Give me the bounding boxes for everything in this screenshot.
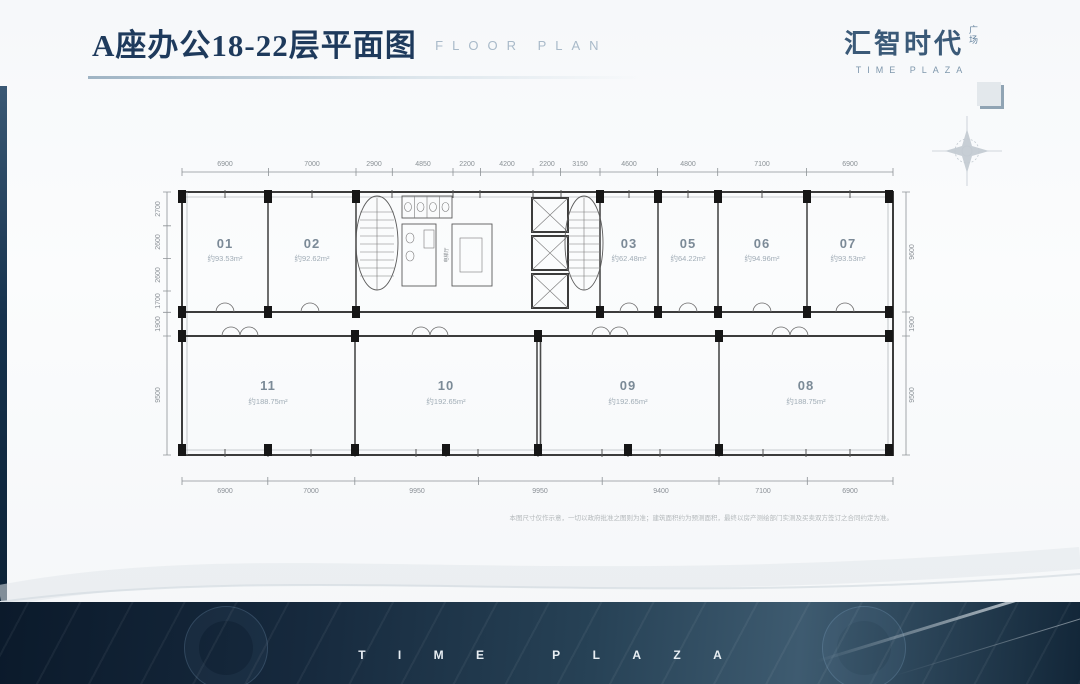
page-title: A座办公18-22层平面图 — [92, 28, 417, 63]
room-number: 06 — [754, 236, 770, 251]
dimension-line-left — [163, 192, 171, 455]
dim-label: 1900 — [909, 316, 916, 332]
swoosh-curve — [0, 558, 1080, 596]
room-number: 01 — [217, 236, 233, 251]
room-area: 约192.65m² — [608, 396, 648, 406]
room-label-03: 03 约62.48m² — [611, 236, 647, 263]
room-label-01: 01 约93.53m² — [207, 236, 243, 263]
footer-band: TIME PLAZA — [0, 602, 1080, 684]
room-number: 02 — [304, 236, 320, 251]
footer-watermark: TIME PLAZA — [0, 648, 1080, 662]
room-number: 08 — [798, 378, 814, 393]
room-label-09: 09 约192.65m² — [608, 378, 648, 406]
dimension-line-bottom — [182, 477, 893, 485]
brand-logo: 汇智时代 广场 TIME PLAZA — [844, 22, 980, 75]
dim-label: 4850 — [415, 161, 431, 168]
toilet-stall-dividers — [415, 196, 440, 218]
band-highlight-line — [894, 617, 1080, 676]
dim-label: 6900 — [217, 161, 233, 168]
dim-label: 6900 — [842, 488, 858, 495]
room-number: 11 — [260, 378, 276, 393]
dim-label: 9400 — [653, 488, 669, 495]
room-label-07: 07 约93.53m² — [830, 236, 866, 263]
dim-label: 7000 — [303, 488, 319, 495]
room-number: 09 — [620, 378, 636, 393]
room-area: 约93.53m² — [830, 253, 866, 263]
structural-columns — [178, 190, 893, 456]
title-underline — [88, 76, 640, 79]
upper-room-partitions — [268, 192, 807, 312]
dim-label: 9950 — [532, 488, 548, 495]
disclaimer-text: 本图尺寸仅作示意，一切以政府批准之图则为准；建筑面积约为预测面积，最终以房产测绘… — [510, 513, 894, 522]
floor-plan-page: A座办公18-22层平面图 FLOOR PLAN 汇智时代 广场 TIME PL… — [0, 0, 1080, 684]
toilet-icon — [417, 203, 424, 212]
dim-label: 2200 — [459, 161, 475, 168]
floor-plan-svg: 电梯厅 6900 7000 2900 4850 2200 4200 2200 3… — [130, 95, 1020, 540]
stairwell-left-treads — [360, 198, 394, 290]
dim-label: 2200 — [539, 161, 555, 168]
room-number: 03 — [621, 236, 637, 251]
brand-name-cn: 汇智时代 — [844, 22, 964, 61]
brand-name-en: TIME PLAZA — [844, 65, 980, 75]
compass-icon — [932, 116, 1002, 186]
room-number: 05 — [680, 236, 696, 251]
dim-label: 2700 — [155, 201, 162, 217]
dimension-line-top — [182, 168, 893, 176]
room-area: 约188.75m² — [786, 396, 826, 406]
room-area: 约93.53m² — [207, 253, 243, 263]
room-label-11: 11 约188.75m² — [248, 378, 288, 406]
dim-label: 9500 — [155, 387, 162, 403]
core-label: 电梯厅 — [443, 247, 450, 262]
washroom — [402, 224, 436, 286]
dim-label: 1700 — [155, 293, 162, 309]
toilet-icon — [430, 203, 437, 212]
dim-label: 2600 — [155, 234, 162, 250]
dim-label: 9600 — [909, 244, 916, 260]
room-area: 约188.75m² — [248, 396, 288, 406]
page-subtitle: FLOOR PLAN — [435, 38, 607, 53]
dim-label: 2900 — [366, 161, 382, 168]
sink-icon — [406, 251, 414, 261]
header: A座办公18-22层平面图 FLOOR PLAN — [92, 20, 608, 65]
core-room-fixture — [460, 238, 482, 272]
room-area: 约64.22m² — [670, 253, 706, 263]
toilet-icon — [442, 203, 449, 212]
brand-name-suffix: 广场 — [967, 25, 980, 45]
dim-label: 6900 — [217, 488, 233, 495]
dim-label: 2600 — [155, 267, 162, 283]
elevator-shafts — [532, 198, 568, 308]
room-area: 约92.62m² — [294, 253, 330, 263]
washroom-counter — [424, 230, 434, 248]
dim-label: 7100 — [754, 161, 770, 168]
dim-label: 4600 — [621, 161, 637, 168]
dim-label: 9500 — [909, 387, 916, 403]
room-label-05: 05 约64.22m² — [670, 236, 706, 263]
core-room — [452, 224, 492, 286]
sink-icon — [406, 233, 414, 243]
lower-room-partitions — [355, 336, 719, 455]
room-label-06: 06 约94.96m² — [744, 236, 780, 263]
room-number: 10 — [438, 378, 454, 393]
dim-label: 4200 — [499, 161, 515, 168]
left-accent-bar — [0, 86, 7, 601]
dim-label: 9950 — [409, 488, 425, 495]
room-area: 约94.96m² — [744, 253, 780, 263]
dim-label: 6900 — [842, 161, 858, 168]
room-area: 约62.48m² — [611, 253, 647, 263]
room-area: 约192.65m² — [426, 396, 466, 406]
footer-swoosh — [0, 540, 1080, 604]
stairwell-right-treads — [568, 198, 600, 290]
room-label-08: 08 约188.75m² — [786, 378, 826, 406]
room-number: 07 — [840, 236, 856, 251]
brand-seal-icon — [184, 606, 268, 684]
dim-label: 7100 — [755, 488, 771, 495]
dim-label: 7000 — [304, 161, 320, 168]
room-label-10: 10 约192.65m² — [426, 378, 466, 406]
room-label-02: 02 约92.62m² — [294, 236, 330, 263]
elevator-x-marks — [532, 198, 568, 308]
dim-label: 3150 — [572, 161, 588, 168]
toilet-icon — [405, 203, 412, 212]
dim-label: 4800 — [680, 161, 696, 168]
dim-label: 1900 — [155, 316, 162, 332]
